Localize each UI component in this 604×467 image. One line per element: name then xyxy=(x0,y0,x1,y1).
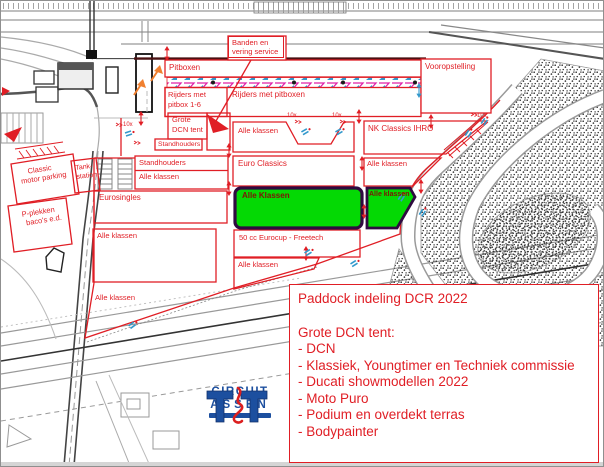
area-label-nk-classics: NK Classics IHRO xyxy=(368,124,433,134)
banden-service-callout: Banden en vering service xyxy=(228,36,284,58)
area-label-euro-classics: Euro Classics xyxy=(238,159,287,169)
area-label-alle-klassen-bottom: Alle klassen xyxy=(238,260,278,269)
legend-title: Paddock indeling DCR 2022 xyxy=(298,291,594,308)
area-label-alle-klassen-stand: Alle klassen xyxy=(139,172,179,181)
grote-dcn-line2: DCN tent xyxy=(172,125,203,134)
green-zone-small-label: Alle klassen xyxy=(369,191,409,200)
area-label-standhouders: Standhouders xyxy=(139,158,186,167)
green-zone-main-label: Alle Klassen xyxy=(242,191,290,201)
circuit-assen-logo: CIRCUIT ASSEN xyxy=(205,386,275,418)
area-label-vooropstelling: Vooropstelling xyxy=(425,62,475,72)
area-label-eurocup50: 50 cc Eurocup - Freetech xyxy=(239,233,323,242)
access-road xyxy=(64,151,103,466)
banden-line1: Banden en xyxy=(232,38,283,47)
legend-subtitle: Grote DCN tent: xyxy=(298,325,594,342)
legend-item: - Podium en overdekt terras xyxy=(298,407,594,424)
area-label-pitboxen: Pitboxen xyxy=(169,63,200,73)
rijders16-line2: pitbox 1-6 xyxy=(168,100,201,109)
marker-10x-1: 10x xyxy=(123,122,133,130)
paddock-map: Pitboxen Banden en vering service Rijder… xyxy=(0,0,604,467)
marker-10x-2: 10x xyxy=(287,113,297,121)
area-label-alle-klassen-left: Alle klassen xyxy=(97,231,137,240)
marker-10x-4: 10x xyxy=(477,113,487,121)
area-label-tankstation: Tank- station xyxy=(75,162,98,182)
legend-item: - DCN xyxy=(298,341,594,358)
marker-10x-3: 10x xyxy=(332,113,342,121)
banden-line2: vering service xyxy=(232,47,283,56)
legend-item: - Bodypainter xyxy=(298,424,594,441)
rijders16-line1: Rijders met xyxy=(168,90,206,99)
area-label-standhouders-small: Standhouders xyxy=(158,141,200,149)
area-label-alle-klassen-top: Alle klassen xyxy=(238,126,278,135)
legend-item: - Klassiek, Youngtimer en Techniek commi… xyxy=(298,358,594,375)
legend-item: - Moto Puro xyxy=(298,391,594,408)
area-label-rijders-pitboxen: Rijders met pitboxen xyxy=(232,90,305,100)
area-label-alle-klassen-diag: Alle klassen xyxy=(95,293,135,302)
tt-logo-icon xyxy=(205,386,273,426)
grote-dcn-line1: Grote xyxy=(172,115,191,124)
legend-item: - Ducati showmodellen 2022 xyxy=(298,374,594,391)
area-label-alle-klassen-right: Alle klassen xyxy=(367,159,407,168)
area-label-eurosingles: Eurosingles xyxy=(99,193,141,203)
legend-box: Paddock indeling DCR 2022 Grote DCN tent… xyxy=(289,284,599,463)
